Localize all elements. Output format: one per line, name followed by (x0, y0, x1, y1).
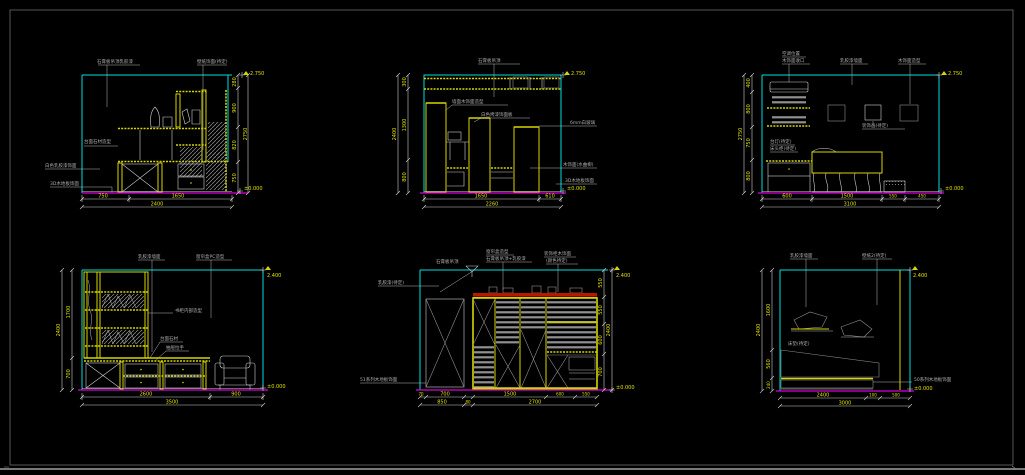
armchair-arm (215, 363, 224, 385)
armchair-arm (246, 363, 255, 385)
decor-item (489, 287, 497, 293)
door-cross (496, 345, 520, 388)
elevation-marks: 2.400 ±0.000 (609, 266, 635, 393)
dim-text: 1700 (66, 306, 72, 319)
dim-text: 80 (465, 400, 471, 405)
armchair-back (220, 356, 250, 368)
desk-label: 台面石材造型 (84, 138, 111, 145)
dim-text: 600 (782, 194, 792, 200)
shelf-post (84, 272, 87, 358)
right-leader-lines (530, 126, 597, 184)
picture-label: 装饰画(待定) (862, 122, 888, 129)
cabinet-post-left (118, 163, 122, 192)
decor-item (532, 286, 541, 293)
view-bed-section: 乳胶漆墙面 壁纸2(待定) 床垫(待定) 50系列木地板饰面 1600 560 … (756, 252, 952, 408)
view-panel-wall-elevation: 石膏板吊顶 墙面木饰面造型 白色烤漆饰面板 6mm白玻璃 木饰面(水曲柳) 3D… (392, 57, 597, 209)
elev-top-text: 2.400 (913, 273, 927, 279)
dim-text: 550 (889, 194, 897, 199)
swing-door (426, 299, 464, 387)
dim-text: 100 (869, 393, 877, 398)
hatched-art-panel (828, 105, 845, 121)
dim-total-text: 3100 (844, 202, 857, 208)
dimension-bottom: 750 1650 2400 (80, 194, 234, 210)
dim-text: 820 (232, 140, 238, 150)
view-desk-elevation: 石膏板吊顶乳胶漆 壁纸饰面(待定) 台面石材造型 白色乳胶漆饰面 3D木地板饰面… (45, 58, 264, 209)
floor-label: 3D木地板饰面 (50, 180, 79, 187)
door-cross (521, 330, 546, 388)
decor-items-top (440, 271, 582, 293)
elev-top-text: 2.750 (250, 71, 264, 77)
ceiling-label: 石膏板吊顶 (478, 57, 501, 64)
dim-text: 2600 (140, 392, 153, 398)
drawer-handle-icon (140, 382, 142, 384)
ac-label-leader (782, 64, 810, 82)
panel-1 (426, 103, 446, 192)
dimension-bottom: 2400 100 500 3000 (778, 393, 912, 409)
slatted-panel (900, 105, 918, 121)
dim-text: 900 (232, 103, 238, 113)
wall-label: 乳胶漆墙面 (138, 253, 161, 260)
elevation-marks: 2.400 ±0.000 (260, 266, 286, 391)
wall-left-label: 乳胶漆(待定) (378, 279, 404, 286)
top-label-1b: 石膏板吊顶+乳胶漆 (486, 255, 526, 262)
monitor-sketch (448, 132, 461, 140)
slat-panel (496, 299, 519, 344)
desk-unit (118, 90, 228, 192)
panel-2 (469, 118, 490, 192)
folded-items-hatch (772, 96, 806, 106)
panel1-label-leader (446, 105, 508, 110)
top-label-2a: 装饰柜木饰面 (544, 250, 571, 257)
dim-text: 560 (766, 359, 772, 369)
drawer-handle-icon (140, 369, 142, 371)
dim-total-text: 3000 (839, 401, 852, 407)
nightstand (766, 161, 812, 192)
elev-flag-icon (941, 71, 947, 75)
elev-bottom-text: ±0.000 (267, 384, 286, 390)
dim-text: 900 (231, 392, 241, 398)
case-right-post (202, 90, 206, 162)
elev-tick-icon (609, 387, 615, 393)
dim-total-text: 2400 (392, 128, 398, 141)
dim-text: 70 (418, 392, 424, 397)
desk-decor-vases (151, 107, 173, 127)
desk-sketch (446, 132, 513, 186)
dim-total-text: 2400 (606, 324, 612, 337)
elev-top-text: 2.750 (571, 71, 585, 77)
books-on-shelf (182, 109, 200, 124)
elev-bottom-text: ±0.000 (616, 385, 635, 391)
elev-flag-icon (265, 266, 271, 270)
floor-label: 51系列木地板饰面 (360, 376, 398, 383)
interior-lines (569, 373, 595, 379)
pillow-curve (812, 148, 836, 152)
elev-top-text: 2.750 (948, 71, 962, 77)
dim-text: 2400 (817, 393, 830, 399)
nightstand-legs (768, 176, 810, 192)
dim-total-text: 2750 (243, 128, 249, 141)
dimension-right: 280 900 820 750 2750 (232, 73, 250, 195)
decor-item (570, 288, 582, 293)
bed (812, 148, 882, 192)
dim-text: 800 (402, 172, 408, 182)
floor-label: 50系列木地板饰面 (914, 376, 952, 383)
dim-text: 750 (98, 194, 108, 200)
dim-text: 1650 (475, 194, 488, 200)
elevation-marks: 2.750 ±0.000 (237, 71, 264, 194)
dim-text: 750 (232, 173, 238, 183)
dimension-left: 1700 700 2400 (56, 268, 74, 392)
air-conditioner (770, 82, 808, 92)
elev-bottom-text: ±0.000 (244, 186, 263, 192)
dim-total-text: 3500 (166, 400, 179, 406)
cad-drawing-canvas[interactable]: 石膏板吊顶乳胶漆 壁纸饰面(待定) 台面石材造型 白色乳胶漆饰面 3D木地板饰面… (0, 0, 1025, 475)
dim-text: 240 (766, 381, 771, 389)
dim-text: 610 (545, 194, 555, 200)
bookshelf (84, 272, 148, 358)
dim-total-text: 2400 (56, 324, 62, 337)
ac-label-1: 空调位置 (782, 50, 800, 57)
dim-text: 700 (66, 369, 72, 379)
chair-hatch-lower (206, 152, 227, 190)
ceiling-left-label: 石膏板吊顶 (436, 258, 459, 265)
elev-flag-icon (912, 266, 918, 270)
desk-legs (140, 130, 172, 160)
wall-decor (828, 105, 918, 121)
wall-label: 乳胶漆墙面 (790, 252, 813, 259)
dim-text: 550 (582, 392, 590, 397)
dim-text: 280 (232, 77, 238, 87)
dim-chain-1 (770, 268, 774, 393)
dim-total-text: 2750 (738, 128, 744, 141)
drawer-handle-icon (788, 168, 790, 170)
elevation-marks: 2.750 ±0.000 (936, 71, 964, 194)
elevation-marks: 2.750 ±0.000 (560, 71, 586, 194)
wall-ceiling-lines (424, 75, 561, 193)
base-cabinet (84, 358, 210, 389)
veneer-label: 木饰面(水曲柳) (563, 161, 594, 168)
dim-text: 1500 (504, 392, 517, 398)
dim-text: 750 (746, 138, 752, 148)
accent-band (473, 293, 597, 297)
interior-sketch (569, 357, 595, 370)
case-left-post (176, 94, 180, 127)
mattress-label: 床垫(待定) (788, 340, 810, 347)
wallpaper-label: 壁纸2(待定) (862, 252, 887, 259)
diagonal-line (440, 271, 473, 292)
elevation-marks: 2.400 ±0.000 (907, 266, 933, 392)
dim-text: 1500 (841, 194, 854, 200)
dim-text: 400 (746, 78, 752, 88)
counter-label: 台面石材 (160, 335, 178, 342)
shelf-post (145, 272, 148, 358)
cabinet-post-right (158, 163, 162, 192)
door-cross (426, 299, 464, 387)
dimension-bottom: 2600 900 3500 (80, 392, 265, 408)
dim-text: 700 (440, 392, 450, 398)
dim-total-text: 2400 (151, 202, 164, 208)
paint-label: 白色乳胶漆饰面 (45, 162, 77, 169)
dim-text: 500 (892, 393, 900, 398)
elev-top-text: 2.400 (267, 273, 281, 279)
mattress-hatch (812, 152, 882, 173)
drawer-handle-icon (190, 182, 192, 184)
pillow-2 (841, 320, 872, 337)
glass-label: 6mm白玻璃 (570, 119, 596, 126)
top-label-1a: 窗帘盒造型 (486, 248, 509, 255)
ac-label-2: 木饰面收口 (782, 57, 805, 64)
elev-bottom-text: ±0.000 (914, 386, 933, 392)
wall-label-leader (790, 259, 818, 307)
dimension-bottom: 1650 610 2260 (422, 194, 563, 210)
sheet-frame (0, 10, 1025, 469)
folded-items-hatch (772, 114, 806, 124)
slat-panel (521, 299, 545, 329)
shelf-label: 书柜内部造型 (175, 307, 202, 314)
dimension-left: 1600 560 240 2400 (756, 268, 774, 393)
floor-label-leader (50, 187, 112, 193)
dimension-right: 550 550 600 700 2400 (598, 268, 614, 392)
door-cross-brace (86, 363, 120, 388)
pillow-1 (794, 312, 827, 329)
bed-skirt-drapes (812, 173, 882, 192)
elev-flag-icon (564, 71, 570, 75)
lower-cross (547, 355, 597, 388)
wall-label: 乳胶漆墙面 (840, 57, 863, 64)
view-bookshelf-elevation: 乳胶漆墙面 窗帘盒PC造型 书柜内部造型 台面石材 抽屉拉手 (56, 253, 286, 407)
elev-flag-icon (243, 71, 249, 75)
panel2-label: 白色烤漆饰面板 (481, 111, 513, 118)
wall-label: 壁纸饰面(待定) (197, 58, 228, 65)
drawing-svg: 石膏板吊顶乳胶漆 壁纸饰面(待定) 台面石材造型 白色乳胶漆饰面 3D木地板饰面… (0, 0, 1025, 475)
mattress-wedge-hatch (781, 350, 879, 377)
wallpaper-label-leader (862, 259, 892, 305)
deco-label-leader (898, 64, 926, 104)
wardrobe (473, 298, 597, 389)
door-cross (473, 299, 495, 345)
dim-text: 800 (746, 171, 752, 181)
panel-3 (514, 127, 539, 192)
dim-total-text: 2260 (486, 202, 499, 208)
drawer-handle-icon (190, 169, 192, 171)
dim-text: 450 (918, 194, 926, 199)
deco-label: 木饰面造型 (898, 57, 921, 64)
pillows (791, 312, 874, 337)
slat-panel (547, 299, 596, 349)
wall-shelves (767, 96, 810, 126)
dimension-left: 400 800 750 800 2750 (738, 73, 754, 195)
shelf-post (97, 272, 100, 358)
ceiling-label: 石膏板吊顶乳胶漆 (97, 58, 133, 65)
decor-item (503, 288, 513, 293)
picture-frame (865, 105, 881, 120)
bench (884, 181, 905, 192)
top-label-2b: (颜色待定) (546, 257, 568, 264)
ceiling-soffit-lines (424, 79, 561, 90)
ac-unit-icon (770, 82, 808, 92)
lamp-label: 台灯(待定) (770, 138, 792, 145)
dim-text: 2700 (529, 400, 542, 406)
dim-text: 1600 (766, 304, 772, 317)
elev-bottom-text: ±0.000 (567, 186, 586, 192)
bed-section (781, 350, 879, 389)
dim-text: 550 (598, 278, 604, 288)
elev-bottom-text: ±0.000 (945, 186, 964, 192)
curtain-label: 窗帘盒PC造型 (196, 253, 225, 260)
dim-text: 1650 (172, 194, 185, 200)
desk-lines (446, 142, 513, 186)
view-wardrobe-elevation: 石膏板吊顶 窗帘盒造型 石膏板吊顶+乳胶漆 装饰柜木饰面 (颜色待定) 乳胶漆(… (360, 248, 635, 407)
dim-text: 600 (556, 392, 564, 397)
armchair (215, 356, 255, 390)
drawer-handle-icon (182, 382, 184, 384)
elev-top-text: 2.400 (616, 273, 630, 279)
dim-total-text: 2400 (756, 324, 762, 337)
dim-text: 300 (402, 77, 408, 87)
panel1-label: 墙面木饰面造型 (452, 98, 484, 105)
cabinet-post (120, 362, 123, 389)
cabinet-cross-brace (122, 164, 158, 192)
ceiling-label-leader (478, 64, 520, 97)
dim-text: 600 (598, 335, 604, 345)
bench-cushion-hatch (884, 181, 905, 185)
decor-item (548, 287, 556, 293)
slat-panel (474, 346, 494, 388)
dim-text: 1300 (402, 119, 408, 132)
top-label-1b-leader (486, 262, 532, 290)
dim-text: 550 (598, 305, 604, 315)
wall-ceiling-lines (780, 270, 910, 391)
cabinet-hatch (180, 147, 202, 177)
drawer-handle-icon (182, 369, 184, 371)
dim-text: 700 (598, 367, 604, 377)
dimension-left: 300 1300 800 2400 (392, 73, 410, 195)
nightstand-label: 床头柜(待定) (770, 145, 796, 152)
floor-label: 3D木地板饰面 (565, 177, 594, 184)
view-bed-wall-elevation: 空调位置 木饰面收口 乳胶漆墙面 木饰面造型 装饰画(待定) 台灯(待定) 床头… (738, 50, 964, 209)
dim-text: 850 (437, 400, 447, 406)
drawer-label-leader (155, 351, 189, 361)
dimension-bottom: 70 700 1500 600 550 850 80 2700 (418, 392, 599, 408)
leader-lines (98, 65, 227, 150)
elev-flag-icon (614, 266, 620, 270)
base-hatch-band (781, 380, 873, 388)
drawer-label: 抽屉拉手 (166, 344, 184, 351)
wall-ceiling-lines (762, 75, 939, 193)
dimension-bottom: 600 1500 550 450 3100 (760, 194, 941, 210)
dim-text: 800 (746, 104, 752, 114)
